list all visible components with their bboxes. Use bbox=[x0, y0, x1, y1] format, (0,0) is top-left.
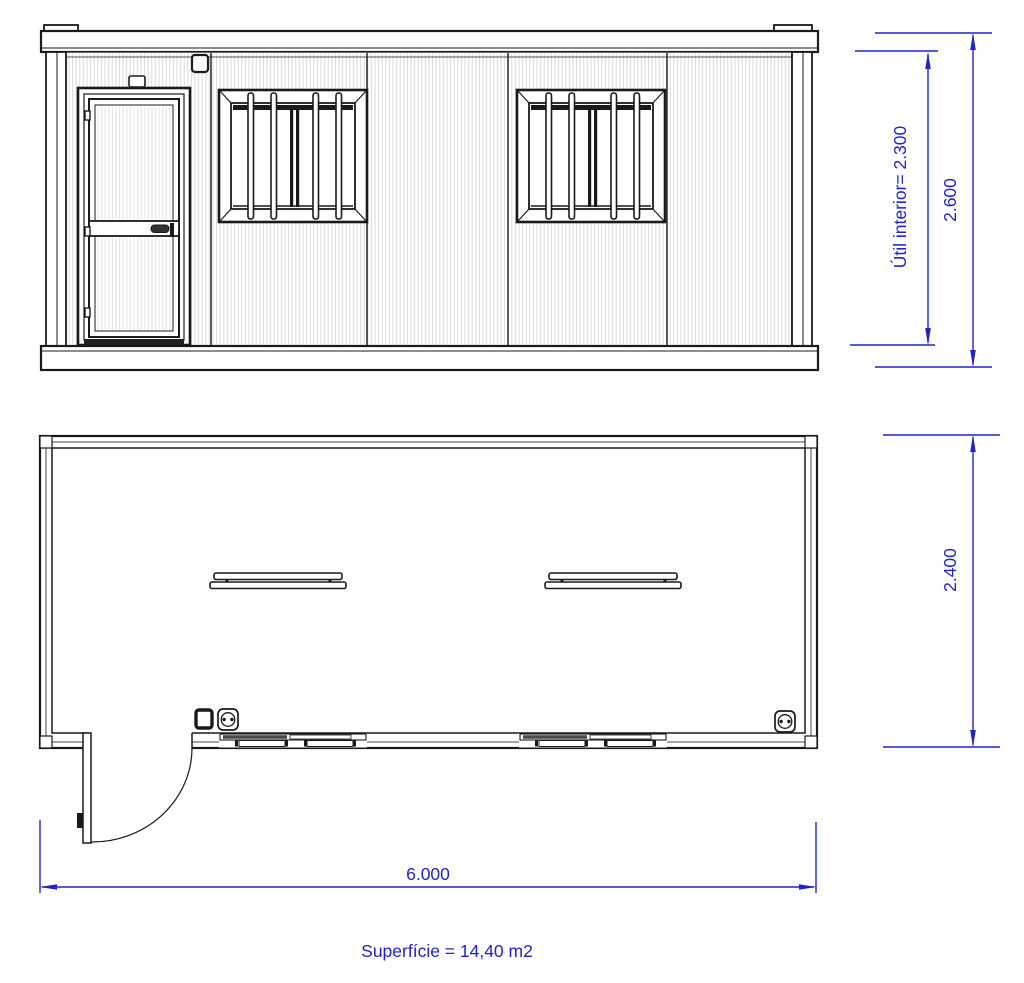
overall-height-label: 2.600 bbox=[940, 178, 960, 222]
plan-view bbox=[40, 436, 817, 843]
technical-drawing-page: Útil interior= 2.300 2.600 2.400 6.000 S… bbox=[0, 0, 1024, 983]
plan-door-handle bbox=[77, 813, 83, 828]
depth-label: 2.400 bbox=[940, 548, 960, 592]
door-hinge-middle bbox=[85, 227, 90, 236]
area-label: Superfície = 14,40 m2 bbox=[361, 941, 533, 961]
entrance-door bbox=[78, 76, 190, 345]
plan-corner-post-br bbox=[805, 736, 817, 748]
wall-badge bbox=[192, 55, 208, 72]
door-corrugation-lower bbox=[98, 238, 170, 330]
roof-panel bbox=[41, 25, 818, 52]
overall-width-label: 6.000 bbox=[406, 864, 450, 884]
door-swing-arc bbox=[91, 748, 192, 842]
door-corrugation-upper bbox=[98, 107, 170, 219]
plan-corner-post-tl bbox=[40, 436, 52, 448]
door-hinge-bottom bbox=[85, 308, 90, 317]
door-leaf-open bbox=[83, 733, 91, 843]
light-switch-symbol bbox=[196, 710, 212, 728]
power-socket-right bbox=[775, 711, 795, 732]
power-socket-left bbox=[218, 709, 238, 730]
door-sill bbox=[84, 339, 184, 345]
corner-post-right bbox=[792, 52, 812, 346]
plan-corner-post-bl bbox=[40, 736, 52, 748]
door-hinge-top bbox=[85, 111, 90, 120]
plan-door bbox=[77, 731, 192, 843]
plan-window-1 bbox=[219, 734, 367, 748]
plan-corner-post-tr bbox=[805, 436, 817, 448]
interior-height-label: Útil interior= 2.300 bbox=[889, 125, 910, 268]
elevation-view bbox=[41, 25, 818, 370]
vent-plate bbox=[129, 76, 145, 87]
door-handle bbox=[151, 225, 169, 233]
barred-window-2 bbox=[517, 90, 665, 222]
barred-window-1 bbox=[219, 90, 367, 222]
base-skid bbox=[41, 346, 818, 370]
corner-post-left bbox=[46, 52, 66, 346]
door-lock bbox=[170, 223, 174, 237]
plan-inner-wall bbox=[52, 448, 805, 733]
plan-window-2 bbox=[519, 734, 667, 748]
